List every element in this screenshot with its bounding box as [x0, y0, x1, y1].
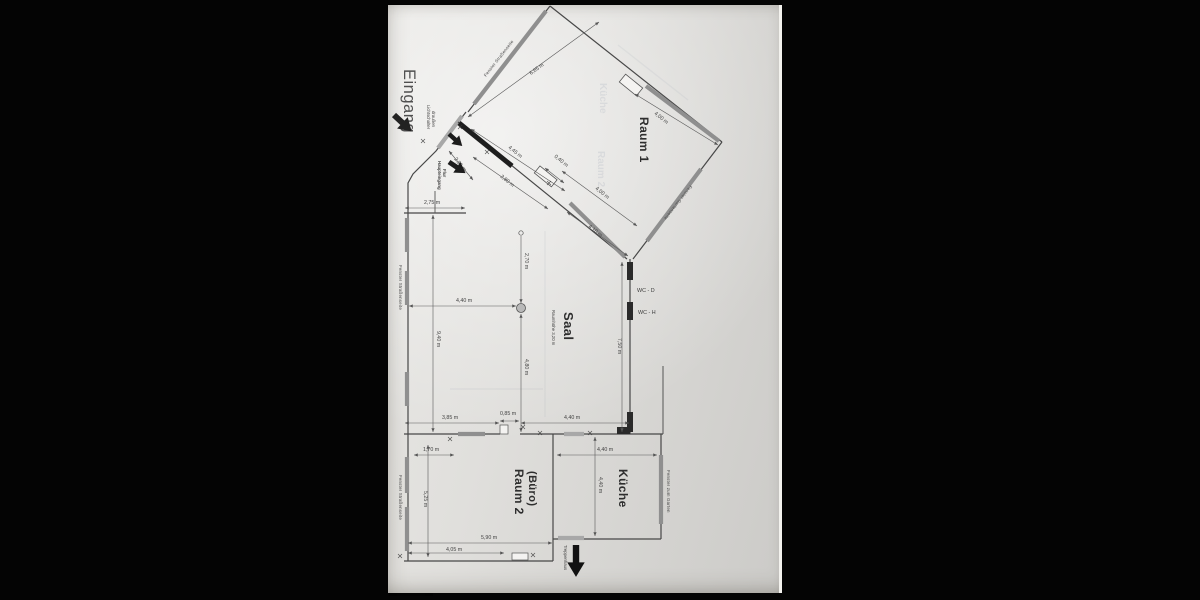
- door-bottom-opening: [500, 425, 508, 434]
- label-saal: Saal: [561, 312, 576, 340]
- svg-text:4,40 m: 4,40 m: [456, 298, 473, 304]
- svg-text:2,75 m: 2,75 m: [424, 200, 441, 206]
- raum1-walls: [550, 6, 722, 259]
- svg-text:4,40 m: 4,40 m: [564, 415, 581, 421]
- label-haupteingang: Haupteingang: [437, 161, 442, 190]
- door-raum1-top: [619, 74, 642, 96]
- svg-text:0,85 m: 0,85 m: [500, 411, 517, 417]
- svg-text:0,40 m: 0,40 m: [553, 154, 570, 169]
- svg-text:4,40 m: 4,40 m: [597, 477, 603, 494]
- svg-text:4,00 m: 4,00 m: [594, 186, 611, 201]
- label-fenster-street-raum2: Fenster Straßenseite: [398, 475, 403, 520]
- label-fenster-street-saal: Fenster Straßenseite: [398, 265, 403, 310]
- svg-text:7,50 m: 7,50 m: [616, 338, 622, 355]
- svg-text:4,00 m: 4,00 m: [653, 111, 670, 126]
- svg-text:1,70 m: 1,70 m: [423, 447, 440, 453]
- door-wc-corridor: [617, 427, 630, 434]
- saal-column: [517, 304, 526, 313]
- svg-text:2,80 m: 2,80 m: [499, 174, 516, 189]
- label-wc-h: WC - H: [638, 310, 656, 316]
- ghost-text-raum2: Raum 2: [595, 151, 606, 188]
- svg-text:4,80 m: 4,80 m: [523, 359, 529, 376]
- label-raum2: Raum 2: [512, 469, 526, 515]
- label-treppenhaus: Treppenhaus: [563, 545, 568, 570]
- window-street-top: [474, 11, 546, 104]
- label-flur: Flur: [442, 169, 447, 177]
- label-note-line1: Lichtschalter: [426, 105, 431, 130]
- label-fenster-garden-raum1: Fenster Gartenseite: [663, 184, 693, 221]
- door-raum2-bottom: [512, 553, 528, 560]
- screenshot-stage: Küche Raum 2: [0, 0, 1200, 600]
- saal-walls: [404, 191, 663, 434]
- door-wc-h: [627, 302, 633, 320]
- room-labels: Raum 1 Saal Raumhöhe 3,20 m Raum 2 (Büro…: [512, 117, 656, 570]
- svg-text:4,40 m: 4,40 m: [597, 447, 614, 453]
- svg-text:9,40 m: 9,40 m: [435, 331, 441, 348]
- svg-text:6,65 m: 6,65 m: [529, 62, 546, 77]
- floorplan-photo: Küche Raum 2: [388, 0, 821, 600]
- svg-text:5,25 m: 5,25 m: [422, 491, 428, 508]
- ghost-text-kueche: Küche: [597, 83, 608, 114]
- door-wc-d: [627, 262, 633, 280]
- paper-sheet: Küche Raum 2: [388, 5, 782, 593]
- label-wc-d: WC - D: [637, 288, 655, 294]
- label-raum1: Raum 1: [637, 117, 651, 163]
- label-note-line2: draußen: [431, 111, 436, 128]
- svg-text:2,70 m: 2,70 m: [523, 253, 529, 270]
- svg-text:5,90 m: 5,90 m: [481, 535, 498, 541]
- floorplan-drawing: Küche Raum 2: [388, 5, 779, 593]
- label-kueche: Küche: [616, 469, 630, 508]
- label-fenster-garden-kueche: Fenster zum Garten: [666, 470, 671, 513]
- svg-text:3,85 m: 3,85 m: [442, 415, 459, 421]
- svg-text:4,05 m: 4,05 m: [446, 547, 463, 553]
- label-raum2-buero: (Büro): [526, 471, 538, 506]
- treppenhaus-arrow-icon: [567, 545, 584, 577]
- label-saal-height: Raumhöhe 3,20 m: [551, 310, 556, 346]
